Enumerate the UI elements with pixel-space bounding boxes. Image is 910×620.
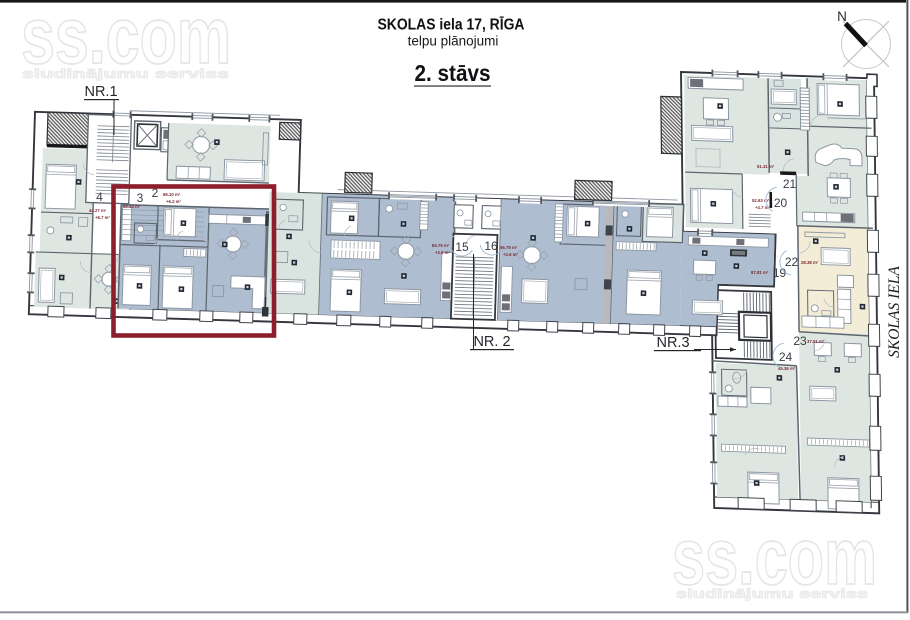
svg-text:45.36 m²: 45.36 m² [778, 366, 796, 371]
svg-text:telpu plānojumi: telpu plānojumi [408, 34, 499, 49]
svg-text:44.27 m²: 44.27 m² [89, 208, 107, 213]
svg-text:19: 19 [773, 266, 787, 280]
svg-text:SKOLAS iela 17, RĪGA: SKOLAS iela 17, RĪGA [378, 17, 525, 34]
svg-text:sludinājumu serviss: sludinājumu serviss [676, 586, 868, 601]
svg-text:NR.1: NR.1 [84, 84, 117, 100]
svg-text:24: 24 [779, 350, 793, 364]
svg-text:+6.7 m²: +6.7 m² [95, 215, 110, 220]
svg-text:28.38 m²: 28.38 m² [801, 260, 819, 265]
svg-text:+6.2 m²: +6.2 m² [166, 199, 181, 204]
svg-text:NR. 2: NR. 2 [473, 334, 510, 350]
svg-text:+2.6 m²: +2.6 m² [503, 252, 518, 257]
svg-text:20: 20 [774, 196, 788, 210]
svg-text:2. stāvs: 2. stāvs [415, 60, 491, 86]
svg-text:23: 23 [793, 334, 807, 348]
svg-text:51.31 m²: 51.31 m² [757, 164, 775, 169]
svg-text:NR.3: NR.3 [656, 335, 689, 351]
svg-text:SKOLAS IELA: SKOLAS IELA [886, 266, 903, 358]
svg-text:84.76 m²: 84.76 m² [432, 243, 450, 248]
svg-text:16: 16 [484, 239, 498, 253]
svg-text:15: 15 [455, 240, 469, 254]
svg-text:sludinājumu serviss: sludinājumu serviss [22, 66, 229, 81]
svg-text:21: 21 [783, 177, 797, 191]
svg-text:62.14 m²: 62.14 m² [123, 204, 141, 209]
svg-text:3: 3 [137, 191, 144, 205]
svg-text:22: 22 [785, 255, 799, 269]
svg-text:86.10 m²: 86.10 m² [163, 192, 181, 197]
svg-text:4: 4 [96, 190, 103, 204]
svg-text:37.01 m²: 37.01 m² [807, 339, 825, 344]
svg-text:+2.6 m²: +2.6 m² [435, 250, 450, 255]
svg-text:87.81 m²: 87.81 m² [751, 270, 769, 275]
svg-text:52.63 m²: 52.63 m² [752, 198, 770, 203]
svg-text:N: N [837, 9, 847, 24]
